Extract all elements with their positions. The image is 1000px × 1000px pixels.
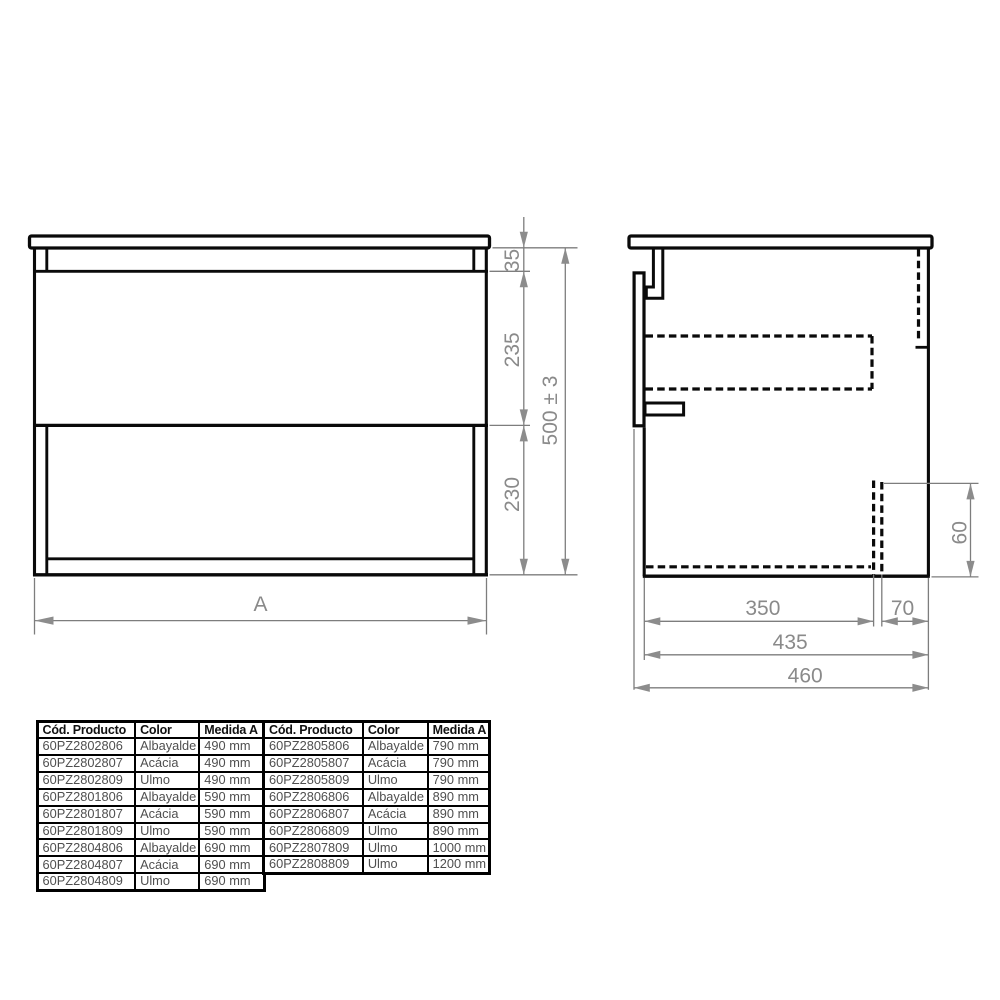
svg-text:500 ± 3: 500 ± 3 (539, 376, 562, 446)
svg-text:60: 60 (949, 521, 972, 544)
svg-text:350: 350 (745, 597, 780, 620)
svg-text:35: 35 (501, 249, 524, 272)
svg-text:230: 230 (501, 477, 524, 512)
svg-text:A: A (253, 593, 267, 616)
svg-text:70: 70 (891, 597, 914, 620)
svg-text:435: 435 (773, 631, 808, 654)
svg-text:235: 235 (501, 332, 524, 367)
svg-text:460: 460 (788, 665, 823, 688)
